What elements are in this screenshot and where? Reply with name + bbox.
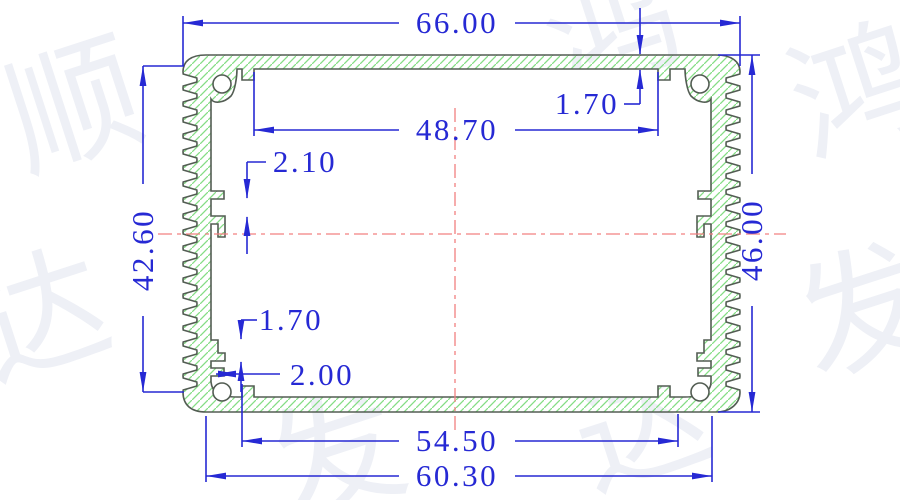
dimension-text: 66.00 <box>416 5 498 40</box>
drawing-canvas: 顺达鸿发顺鸿发达发 66.0048.7054.5060.3042.6046.00… <box>0 0 900 500</box>
dimension-text: 1.70 <box>555 86 619 121</box>
dimension-arrow <box>242 438 262 445</box>
dimension-text: 42.60 <box>125 209 160 291</box>
dimension-text: 2.00 <box>290 357 354 392</box>
watermark-text: 顺 <box>0 16 159 197</box>
dimension-arrow <box>749 392 756 412</box>
dimension-text: 46.00 <box>734 199 769 281</box>
corner-screw-hole <box>691 75 709 93</box>
dimension-text: 1.70 <box>259 302 323 337</box>
corner-screw-hole <box>213 75 231 93</box>
cad-drawing: 顺达鸿发顺鸿发达发 66.0048.7054.5060.3042.6046.00… <box>0 0 900 500</box>
dimension-arrow <box>140 372 147 392</box>
corner-screw-hole <box>691 383 709 401</box>
dimension-arrow <box>183 20 203 27</box>
dimension-arrow <box>720 20 740 27</box>
corner-screw-hole <box>213 383 231 401</box>
watermark-text: 达 <box>0 226 126 407</box>
dimension-text: 54.50 <box>416 423 498 458</box>
dimension-text: 60.30 <box>416 458 498 493</box>
dimension-text: 2.10 <box>273 144 337 179</box>
dimension-arrow <box>140 66 147 86</box>
dimension-arrow <box>206 473 226 480</box>
watermark-text: 鸿 <box>772 1 900 182</box>
dimension-arrow <box>749 55 756 75</box>
watermark-text: 发 <box>778 221 900 402</box>
dimension-text: 48.70 <box>416 112 498 147</box>
